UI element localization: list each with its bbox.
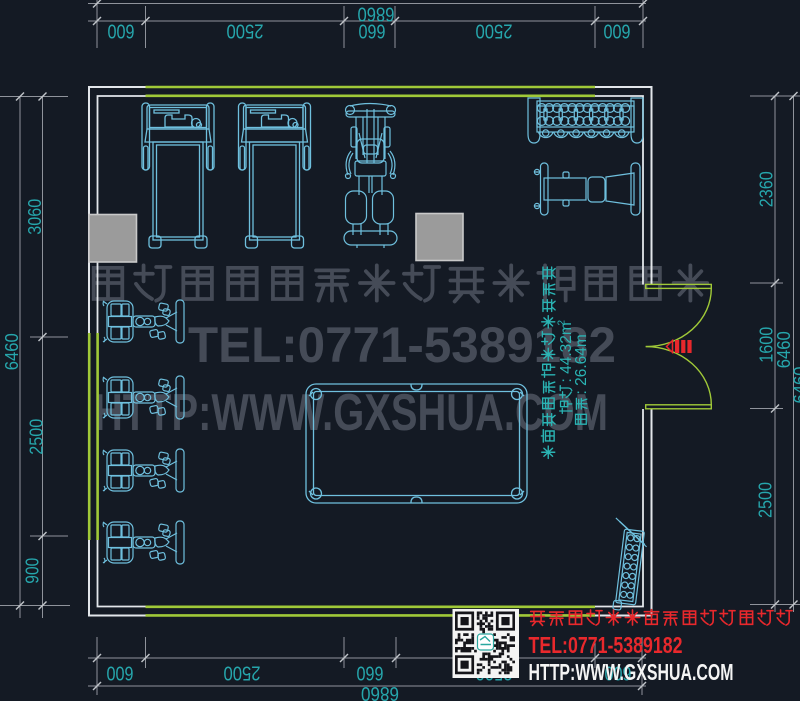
svg-text:6460: 6460 xyxy=(2,333,22,370)
svg-text:3060: 3060 xyxy=(25,199,45,235)
svg-text:660: 660 xyxy=(357,662,384,684)
svg-text:: 26.64m: : 26.64m xyxy=(573,334,590,394)
svg-text:2360: 2360 xyxy=(756,171,776,207)
svg-text:6860: 6860 xyxy=(361,682,399,701)
svg-text:6460: 6460 xyxy=(774,331,794,368)
svg-text:600: 600 xyxy=(108,19,135,41)
svg-text:2500: 2500 xyxy=(755,482,775,518)
svg-text:HTTP:WWW.GXSHUA.COM: HTTP:WWW.GXSHUA.COM xyxy=(529,659,734,685)
svg-text:6460: 6460 xyxy=(790,367,800,404)
svg-text:HTTP:WWW.GXSHUA.COM: HTTP:WWW.GXSHUA.COM xyxy=(94,384,608,442)
svg-text:900: 900 xyxy=(22,558,42,584)
svg-text:600: 600 xyxy=(604,19,631,41)
svg-text:2500: 2500 xyxy=(224,662,261,684)
svg-text:600: 600 xyxy=(107,662,134,684)
svg-text:2: 2 xyxy=(557,320,568,326)
svg-text:2500: 2500 xyxy=(26,419,46,455)
svg-text:660: 660 xyxy=(359,19,386,41)
svg-text:TEL:0771-5389182: TEL:0771-5389182 xyxy=(529,632,683,658)
svg-text:2500: 2500 xyxy=(476,19,513,41)
svg-text:2500: 2500 xyxy=(227,19,264,41)
